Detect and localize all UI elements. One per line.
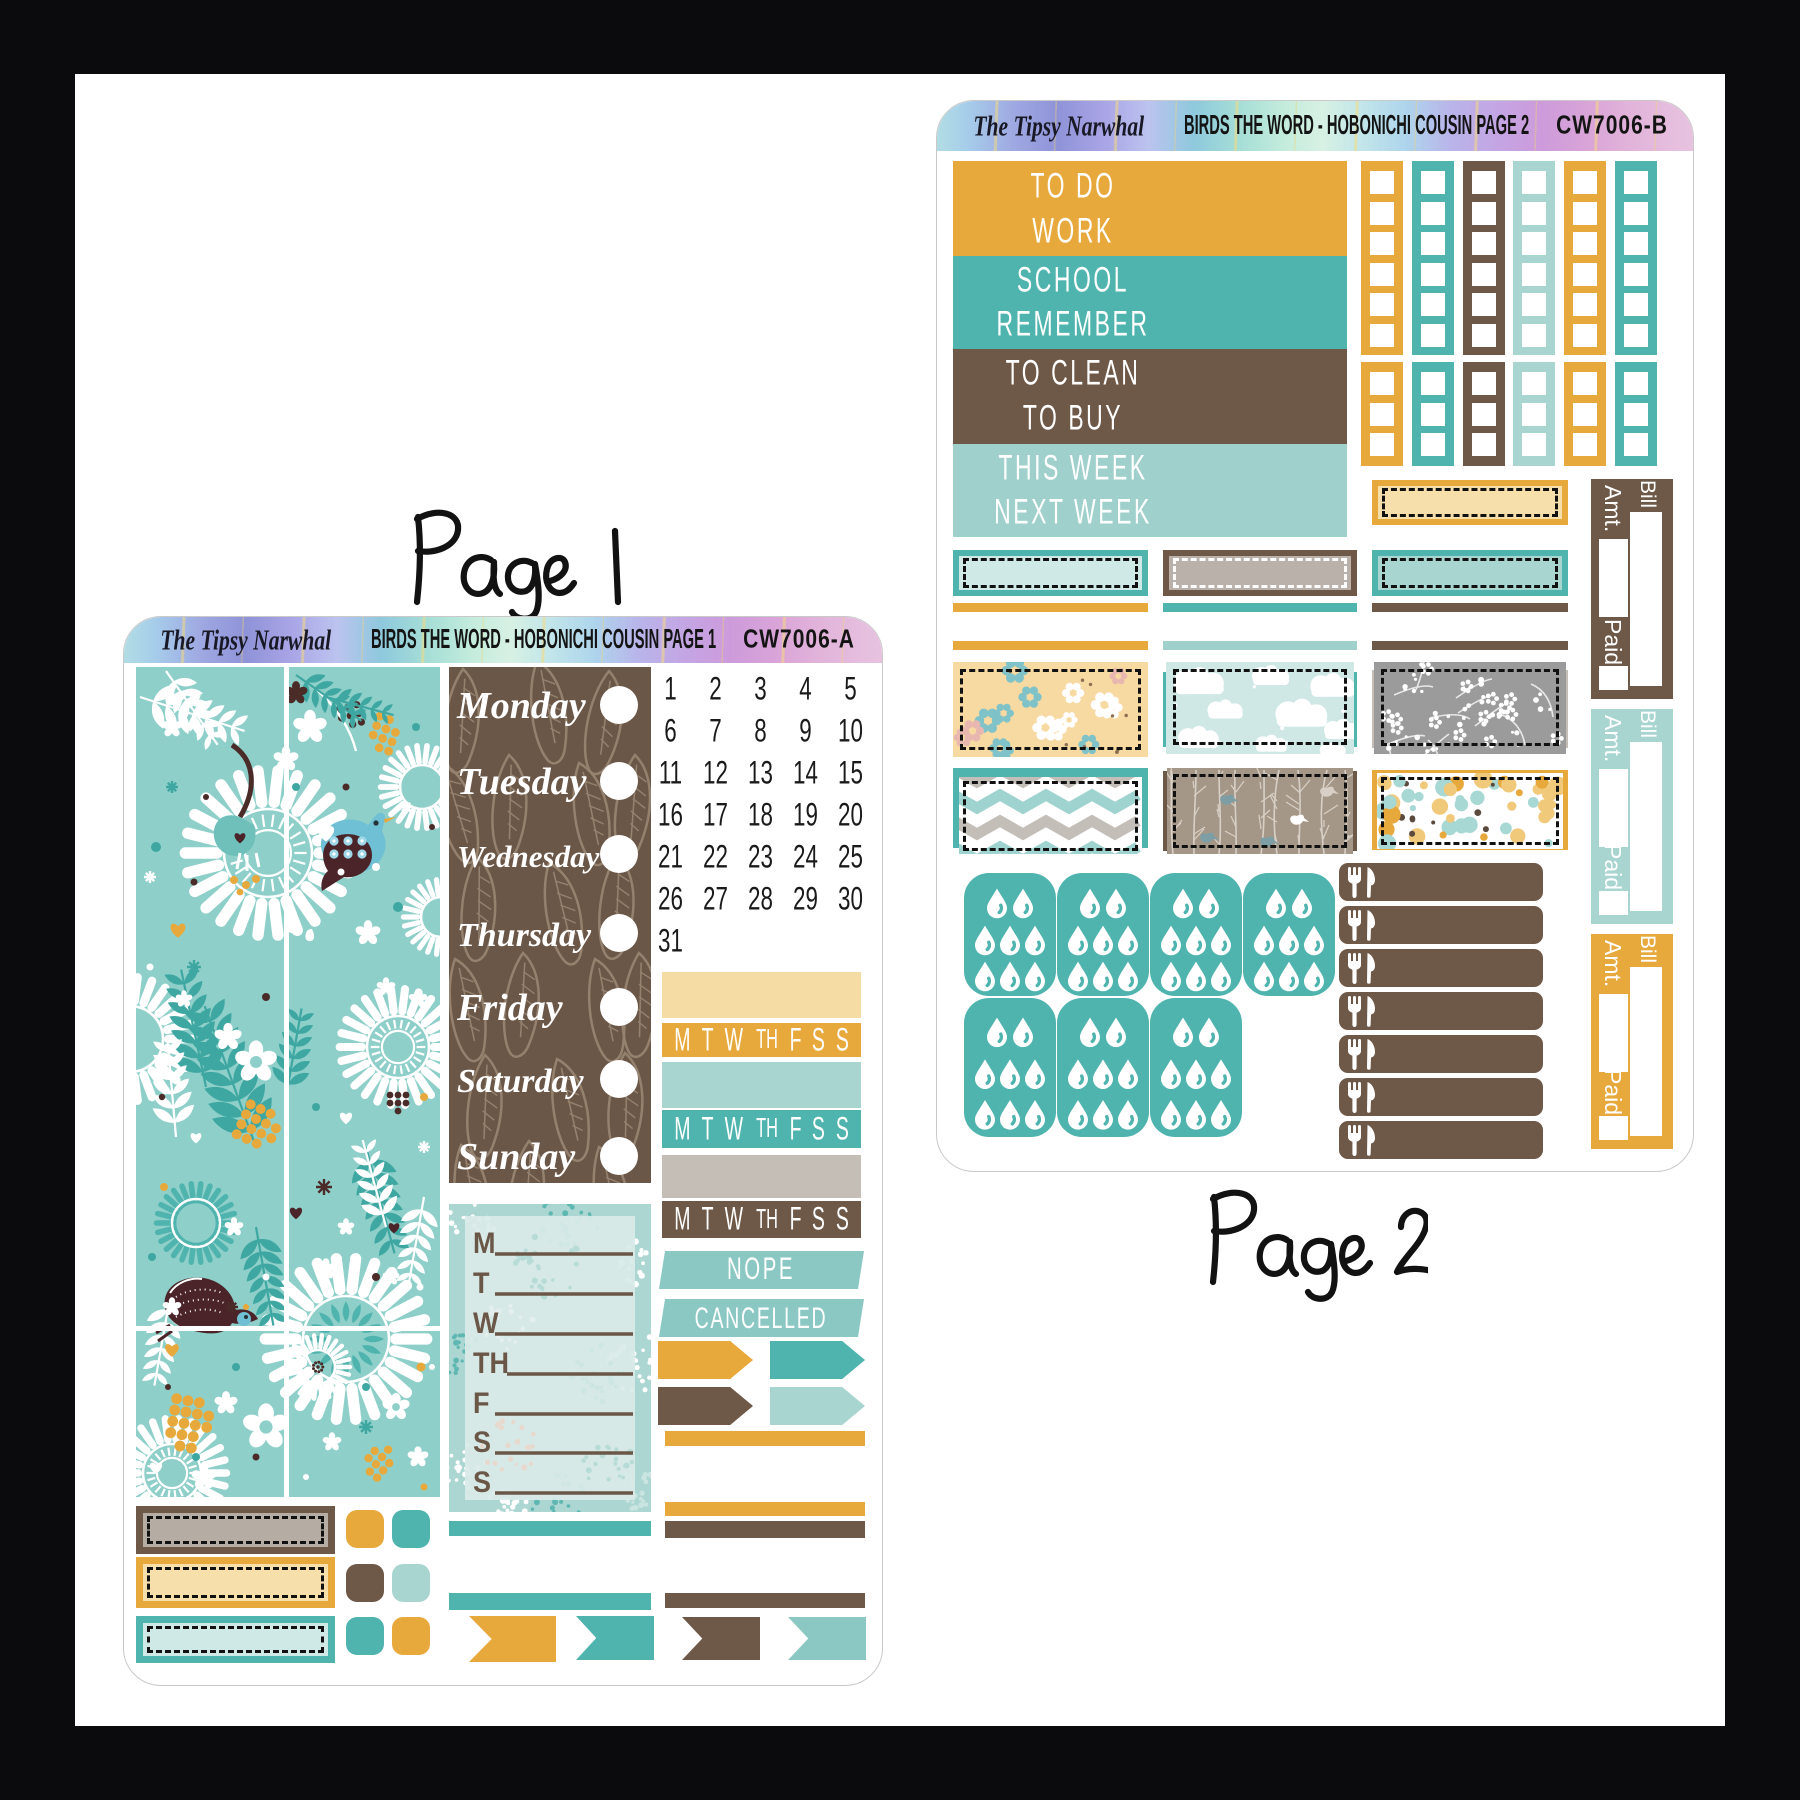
svg-text:Monday: Monday [456, 685, 586, 727]
svg-text:Wednesday: Wednesday [457, 839, 600, 874]
svg-text:Bill: Bill [1636, 480, 1659, 508]
svg-text:T: T [473, 1267, 490, 1300]
svg-text:Friday: Friday [456, 987, 563, 1029]
svg-text:Tuesday: Tuesday [457, 761, 587, 803]
svg-text:Amt.: Amt. [1600, 940, 1626, 987]
svg-text:S: S [473, 1426, 491, 1459]
svg-text:Paid: Paid [1600, 844, 1626, 890]
svg-text:S: S [473, 1466, 491, 1499]
svg-text:F: F [473, 1387, 489, 1420]
svg-text:Bill: Bill [1636, 935, 1659, 963]
svg-text:Saturday: Saturday [457, 1063, 584, 1100]
svg-text:Thursday: Thursday [457, 917, 592, 954]
svg-text:Amt.: Amt. [1600, 715, 1626, 762]
svg-text:Sunday: Sunday [457, 1136, 575, 1178]
svg-text:Paid: Paid [1600, 619, 1626, 665]
svg-text:Bill: Bill [1636, 710, 1659, 738]
svg-text:W: W [473, 1307, 499, 1340]
svg-text:Amt.: Amt. [1600, 485, 1626, 532]
svg-text:M: M [473, 1227, 495, 1260]
svg-text:Paid: Paid [1600, 1069, 1626, 1115]
svg-text:TH: TH [473, 1347, 509, 1380]
